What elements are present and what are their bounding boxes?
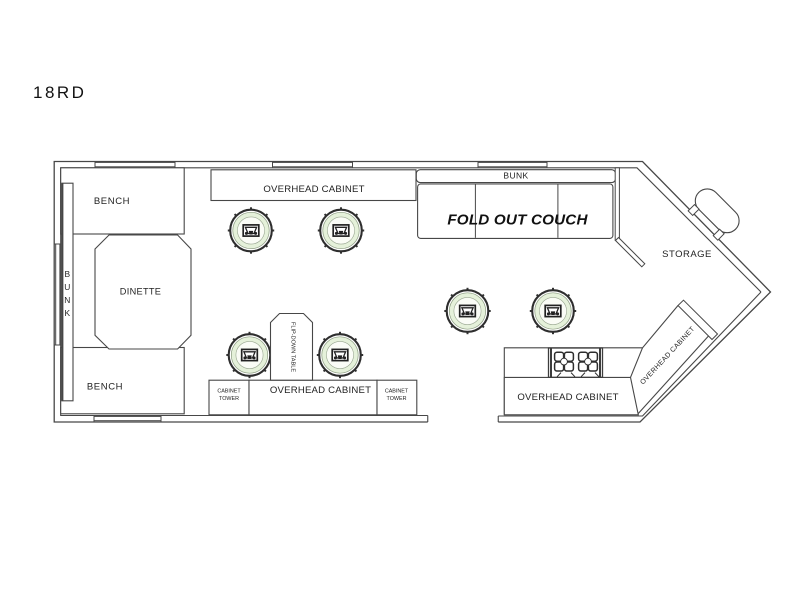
svg-text:BENCH: BENCH	[94, 196, 130, 207]
svg-text:N: N	[64, 295, 70, 305]
svg-text:CABINET: CABINET	[385, 389, 409, 395]
svg-text:B: B	[65, 269, 71, 279]
svg-text:OVERHEAD CABINET: OVERHEAD CABINET	[263, 184, 364, 195]
svg-text:18RD: 18RD	[33, 83, 86, 102]
svg-text:TOWER: TOWER	[219, 396, 239, 402]
svg-text:CABINET: CABINET	[217, 389, 241, 395]
svg-text:BENCH: BENCH	[87, 382, 123, 393]
svg-text:TOWER: TOWER	[387, 396, 407, 402]
svg-text:BUNK: BUNK	[503, 170, 528, 180]
svg-text:DINETTE: DINETTE	[120, 287, 161, 297]
svg-text:FLIP-DOWN TABLE: FLIP-DOWN TABLE	[290, 322, 296, 372]
svg-text:OVERHEAD CABINET: OVERHEAD CABINET	[517, 392, 618, 403]
svg-text:K: K	[65, 308, 71, 318]
svg-text:STORAGE: STORAGE	[662, 249, 712, 260]
svg-text:FOLD OUT COUCH: FOLD OUT COUCH	[447, 212, 588, 229]
svg-text:OVERHEAD CABINET: OVERHEAD CABINET	[270, 385, 371, 396]
svg-text:U: U	[64, 282, 70, 292]
